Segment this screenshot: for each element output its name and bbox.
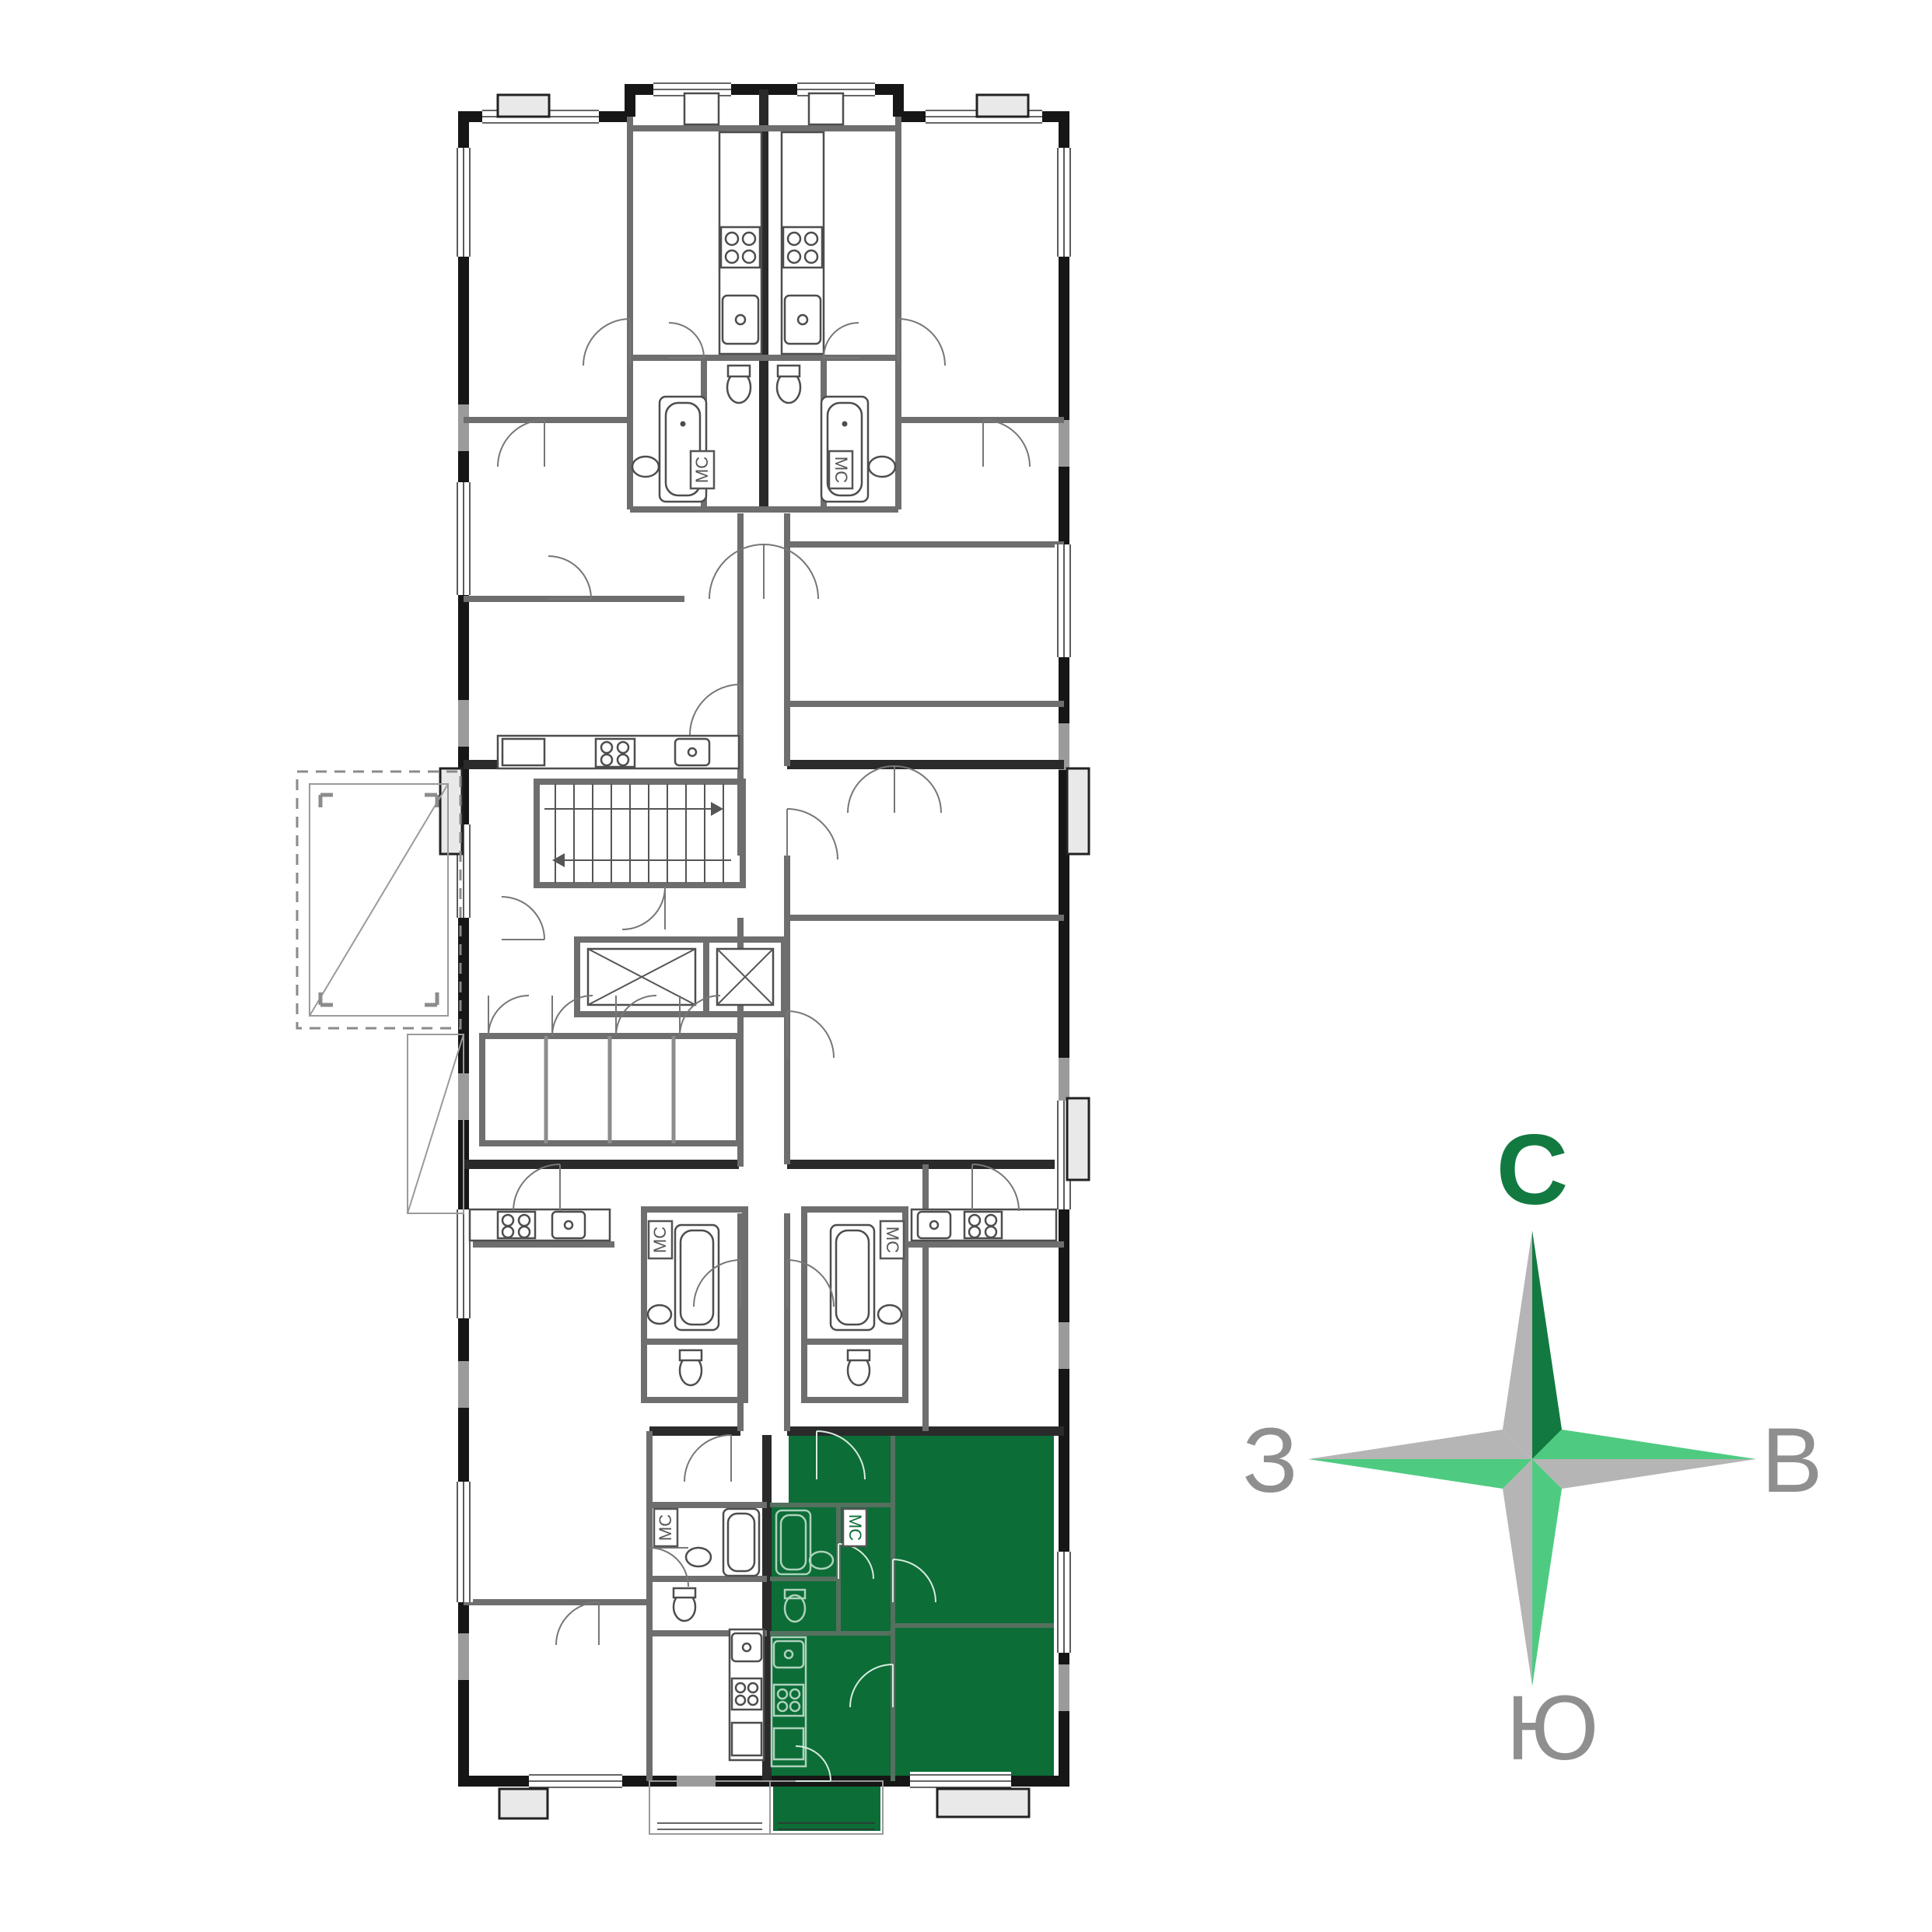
fixtures-lower-mid (470, 1209, 1056, 1385)
compass-south-right (1532, 1459, 1562, 1686)
toilet (848, 1350, 870, 1385)
sink (878, 1305, 901, 1324)
bathroom-label: МС (831, 457, 851, 483)
stove (498, 1212, 535, 1238)
window (910, 1772, 1011, 1790)
compass-label-west: З (1242, 1409, 1297, 1512)
staircase (537, 782, 743, 885)
compass-west-bottom (1308, 1459, 1532, 1489)
sink (648, 1305, 671, 1324)
window (454, 482, 473, 595)
compass-east-top (1532, 1430, 1756, 1459)
kitchen-sink (552, 1212, 585, 1238)
dashed-balcony (297, 772, 464, 1213)
bathroom-label: МС (650, 1227, 670, 1253)
kitchen-sink (732, 1633, 761, 1661)
fixtures-mid-kitchen (498, 736, 739, 768)
green-kitchen (770, 1633, 893, 1777)
window (1055, 544, 1073, 657)
slab-right-lower (1067, 1098, 1089, 1180)
bathtub (675, 1225, 719, 1330)
green-bedroom (893, 1436, 1054, 1626)
toilet (777, 366, 800, 403)
toilet (680, 1350, 702, 1385)
stove (596, 739, 635, 767)
compass-rose: С В Ю З (1242, 1115, 1822, 1780)
bathroom-label: МС (656, 1514, 675, 1541)
slab-top-right (977, 95, 1028, 117)
slab-bottom-right (937, 1789, 1029, 1817)
bathtub (723, 1509, 759, 1576)
sink (686, 1548, 711, 1566)
toilet (674, 1588, 695, 1621)
compass-label-east: В (1762, 1409, 1823, 1512)
bathroom-label: МС (692, 457, 712, 483)
toilet (727, 366, 751, 403)
kitchen-sink (723, 296, 758, 344)
stove (721, 227, 760, 268)
window (529, 1772, 622, 1790)
compass-west-top (1308, 1430, 1532, 1459)
green-living-room (893, 1626, 1054, 1781)
stove (964, 1212, 1002, 1238)
sink (869, 457, 895, 477)
window (1055, 1552, 1073, 1653)
window (454, 1482, 473, 1602)
kitchen-sink (675, 739, 709, 765)
bathtub (831, 1225, 874, 1330)
kitchen-sink (785, 296, 821, 344)
stair-arrow-up (711, 802, 723, 816)
compass-east-bottom (1532, 1459, 1756, 1489)
compass-north-right (1532, 1230, 1562, 1459)
slab-left (440, 768, 462, 854)
compass-label-south: Ю (1506, 1677, 1598, 1780)
floorplan-page: МС МС МС МС МС МС (0, 0, 1932, 1932)
kitchen-sink (918, 1212, 950, 1238)
bathroom-label: МС (883, 1227, 902, 1253)
stair-arrow-down (552, 853, 565, 867)
compass-north-left (1503, 1230, 1532, 1459)
slab-top-left (498, 95, 549, 117)
storage-rooms (482, 996, 739, 1143)
green-hall (789, 1436, 893, 1505)
floorplan-canvas: МС МС МС МС МС МС (0, 0, 1932, 1932)
stove (732, 1678, 761, 1710)
sink (632, 457, 659, 477)
window (1055, 148, 1073, 257)
window (454, 148, 473, 257)
compass-label-north: С (1496, 1115, 1568, 1226)
slab-right-upper (1067, 768, 1089, 854)
stove (783, 227, 822, 268)
compass-south-left (1503, 1459, 1532, 1686)
bathroom-label: МС (845, 1514, 865, 1541)
slab-bottom-left (499, 1789, 548, 1818)
